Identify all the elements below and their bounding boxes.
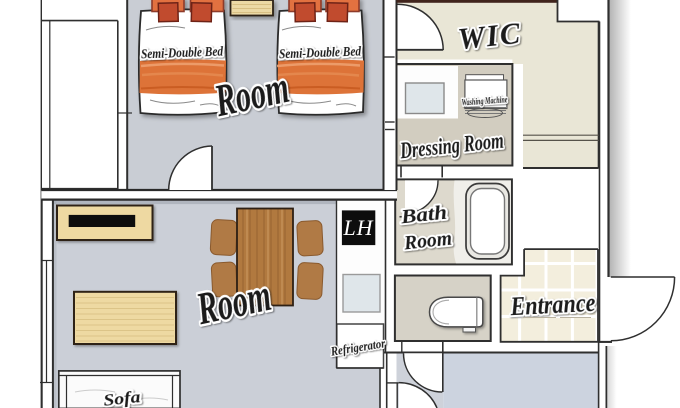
svg-text:Entrance: Entrance <box>509 288 596 321</box>
svg-text:WIC: WIC <box>456 15 523 56</box>
svg-text:LH: LH <box>342 215 373 240</box>
svg-text:Semi-Double Bed: Semi-Double Bed <box>279 43 362 61</box>
svg-text:Sofa: Sofa <box>102 387 141 408</box>
svg-text:Semi-Double Bed: Semi-Double Bed <box>141 44 224 62</box>
